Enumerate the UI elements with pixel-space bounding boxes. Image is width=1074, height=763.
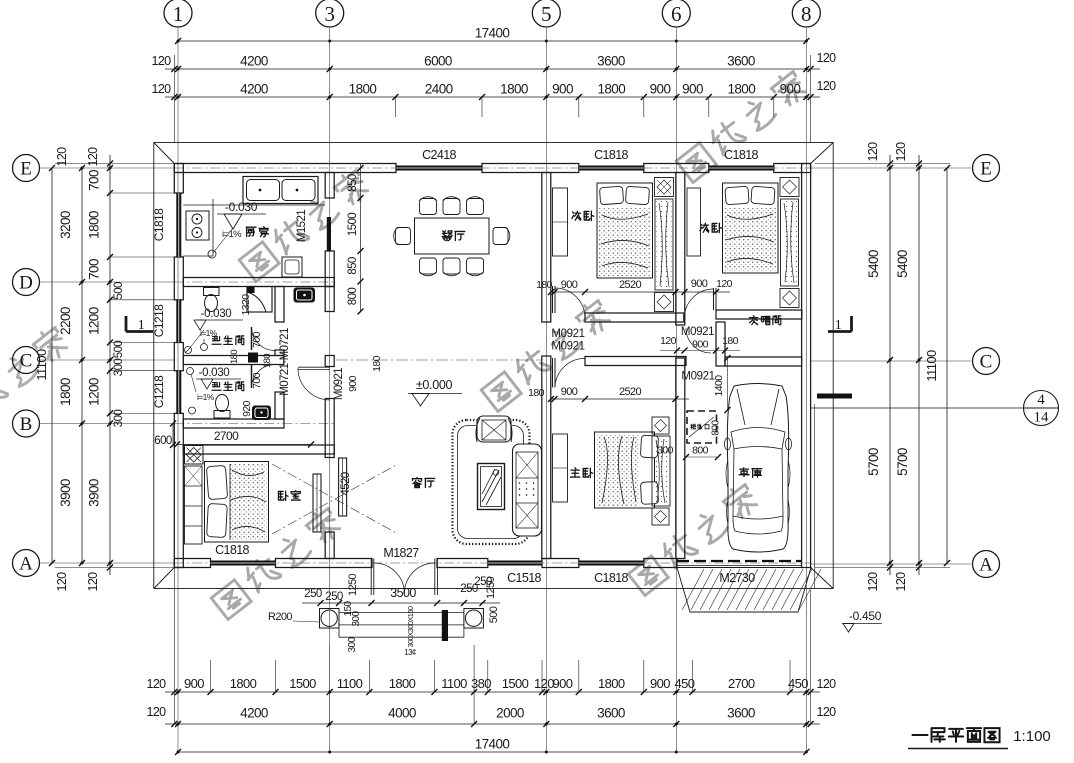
svg-text:120: 120: [816, 51, 836, 65]
svg-text:1500: 1500: [347, 213, 359, 236]
svg-text:300: 300: [113, 410, 125, 428]
svg-text:C: C: [20, 351, 33, 372]
svg-text:1800: 1800: [598, 676, 625, 691]
svg-text:3600: 3600: [727, 706, 755, 721]
svg-text:3600: 3600: [727, 54, 755, 69]
svg-text:120: 120: [716, 278, 732, 290]
svg-text:1320: 1320: [240, 294, 252, 316]
svg-text:800: 800: [692, 445, 708, 457]
svg-text:M0721·M0721: M0721·M0721: [279, 328, 291, 396]
svg-text:E: E: [20, 159, 32, 180]
svg-text:700: 700: [87, 170, 102, 191]
svg-text:1800: 1800: [349, 82, 377, 97]
svg-text:C: C: [980, 352, 993, 373]
svg-text:3200: 3200: [58, 211, 73, 239]
svg-text:M0921: M0921: [551, 341, 584, 353]
svg-text:2520: 2520: [619, 279, 642, 291]
svg-text:-0.450: -0.450: [849, 609, 882, 623]
svg-text:6000: 6000: [424, 54, 452, 69]
svg-text:14: 14: [1034, 410, 1050, 426]
svg-text:-0.030: -0.030: [199, 367, 230, 379]
svg-text:1200: 1200: [87, 307, 102, 335]
svg-text:120: 120: [151, 54, 171, 68]
svg-text:1250: 1250: [485, 576, 497, 599]
svg-text:-0.030: -0.030: [225, 200, 258, 214]
svg-text:800: 800: [347, 288, 359, 306]
svg-text:M1827: M1827: [383, 546, 419, 560]
svg-text:2000: 2000: [496, 706, 524, 721]
svg-text:C1818: C1818: [724, 148, 758, 162]
svg-text:120: 120: [816, 79, 836, 93]
svg-text:1:100: 1:100: [1013, 728, 1051, 745]
svg-text:900: 900: [780, 82, 801, 97]
svg-text:5400: 5400: [895, 250, 910, 278]
svg-text:500: 500: [113, 282, 125, 300]
svg-text:5700: 5700: [895, 448, 910, 476]
svg-text:900: 900: [692, 339, 708, 351]
svg-text:300X300X150: 300X300X150: [406, 606, 415, 647]
svg-text:900: 900: [184, 676, 204, 691]
svg-text:C1218: C1218: [152, 375, 166, 408]
svg-text:4200: 4200: [240, 706, 268, 721]
svg-text:900: 900: [561, 386, 578, 398]
svg-text:2520: 2520: [619, 386, 642, 398]
svg-text:M2730: M2730: [719, 571, 755, 585]
svg-text:1800: 1800: [727, 82, 755, 97]
svg-text:300: 300: [351, 611, 362, 627]
svg-text:3900: 3900: [87, 479, 102, 507]
svg-text:5400: 5400: [866, 250, 881, 278]
svg-text:120: 120: [86, 572, 100, 592]
svg-text:120: 120: [866, 572, 880, 592]
svg-text:4200: 4200: [240, 82, 268, 97]
svg-text:4200: 4200: [240, 54, 268, 69]
svg-text:C2418: C2418: [422, 148, 456, 162]
svg-text:C1818: C1818: [215, 543, 249, 557]
svg-text:1100: 1100: [337, 676, 363, 691]
svg-text:i=1%: i=1%: [197, 392, 215, 402]
svg-text:B: B: [20, 414, 33, 435]
svg-text:180: 180: [536, 279, 552, 291]
svg-text:3600: 3600: [597, 706, 625, 721]
svg-text:M0921: M0921: [551, 328, 584, 340]
svg-text:450: 450: [675, 676, 695, 691]
svg-text:-0.030: -0.030: [201, 308, 232, 320]
svg-text:M1521: M1521: [296, 210, 308, 242]
svg-text:180: 180: [229, 350, 240, 364]
svg-text:M0921: M0921: [333, 368, 345, 400]
svg-text:120: 120: [660, 335, 676, 347]
svg-text:500: 500: [113, 341, 125, 359]
svg-text:6: 6: [671, 2, 682, 26]
svg-text:R200: R200: [268, 611, 292, 623]
svg-text:1800: 1800: [389, 676, 416, 691]
svg-text:2700: 2700: [214, 429, 239, 443]
svg-text:M0921: M0921: [681, 371, 714, 383]
svg-text:600: 600: [154, 435, 172, 447]
svg-text:A: A: [979, 555, 993, 576]
svg-text:3: 3: [324, 2, 335, 26]
svg-text:3900: 3900: [58, 479, 73, 507]
svg-text:180: 180: [528, 387, 544, 399]
svg-text:300: 300: [347, 637, 358, 653]
svg-text:1500: 1500: [502, 676, 529, 691]
svg-text:C1818: C1818: [594, 148, 628, 162]
svg-text:500: 500: [488, 606, 500, 623]
svg-text:900: 900: [347, 375, 359, 391]
svg-text:300: 300: [113, 359, 125, 377]
svg-text:3600: 3600: [597, 54, 625, 69]
svg-text:1500: 1500: [289, 676, 316, 691]
svg-text:180: 180: [262, 354, 273, 368]
svg-text:850: 850: [347, 257, 359, 275]
svg-text:120: 120: [894, 572, 908, 592]
svg-text:120: 120: [151, 82, 171, 96]
svg-text:1800: 1800: [58, 378, 73, 406]
svg-text:11100: 11100: [924, 350, 939, 382]
svg-text:1800: 1800: [87, 211, 102, 239]
svg-text:C1818: C1818: [594, 571, 628, 585]
svg-text:120: 120: [894, 142, 908, 162]
svg-text:1800: 1800: [500, 82, 528, 97]
svg-text:4520: 4520: [340, 472, 352, 495]
svg-text:C1518: C1518: [507, 571, 541, 585]
svg-text:2400: 2400: [425, 82, 453, 97]
svg-text:M0921: M0921: [681, 326, 714, 338]
svg-text:120: 120: [146, 705, 166, 719]
svg-text:900: 900: [561, 279, 578, 291]
svg-text:900: 900: [553, 676, 573, 691]
svg-text:2700: 2700: [728, 676, 755, 691]
svg-text:C1218: C1218: [152, 304, 166, 337]
svg-text:1100: 1100: [441, 676, 467, 691]
svg-text:E: E: [980, 159, 992, 180]
svg-text:920: 920: [241, 400, 253, 416]
svg-text:180: 180: [371, 355, 383, 371]
svg-text:1: 1: [835, 318, 842, 333]
svg-text:900: 900: [552, 82, 573, 97]
svg-text:120: 120: [816, 677, 836, 691]
svg-text:120: 120: [816, 705, 836, 719]
svg-text:900: 900: [650, 82, 671, 97]
svg-text:700: 700: [251, 331, 263, 347]
svg-text:C1818: C1818: [152, 208, 166, 241]
svg-text:1200: 1200: [87, 378, 102, 406]
svg-text:900: 900: [650, 676, 670, 691]
svg-text:120: 120: [55, 572, 69, 592]
svg-text:11100: 11100: [34, 349, 49, 381]
svg-text:120: 120: [866, 142, 880, 162]
svg-text:1800: 1800: [597, 82, 625, 97]
svg-text:4000: 4000: [388, 706, 416, 721]
svg-text:700: 700: [87, 259, 102, 280]
svg-text:250: 250: [304, 588, 322, 600]
svg-text:900: 900: [682, 82, 703, 97]
svg-text:8: 8: [801, 2, 812, 26]
svg-text:2200: 2200: [58, 307, 73, 335]
svg-text:1250: 1250: [347, 573, 359, 596]
svg-text:1800: 1800: [230, 676, 257, 691]
svg-text:17400: 17400: [475, 26, 510, 41]
svg-text:120: 120: [146, 677, 166, 691]
svg-text:800: 800: [711, 420, 722, 436]
svg-text:D: D: [19, 273, 33, 294]
svg-text:5700: 5700: [866, 448, 881, 476]
svg-text:1: 1: [173, 2, 184, 26]
svg-text:5: 5: [541, 2, 552, 26]
svg-text:850: 850: [347, 174, 359, 192]
svg-text:3500: 3500: [390, 586, 416, 600]
svg-text:120: 120: [534, 676, 554, 691]
svg-text:A: A: [19, 554, 33, 575]
svg-text:1400: 1400: [713, 375, 725, 397]
svg-text:4: 4: [1037, 392, 1045, 408]
svg-text:450: 450: [788, 676, 808, 691]
svg-text:1: 1: [138, 318, 145, 333]
svg-text:180: 180: [722, 335, 738, 347]
svg-text:±0.000: ±0.000: [416, 378, 453, 392]
svg-text:13¢: 13¢: [404, 648, 416, 657]
svg-text:17400: 17400: [475, 737, 510, 752]
svg-text:300: 300: [657, 445, 673, 457]
svg-text:900: 900: [691, 278, 708, 290]
svg-text:700: 700: [251, 372, 263, 388]
